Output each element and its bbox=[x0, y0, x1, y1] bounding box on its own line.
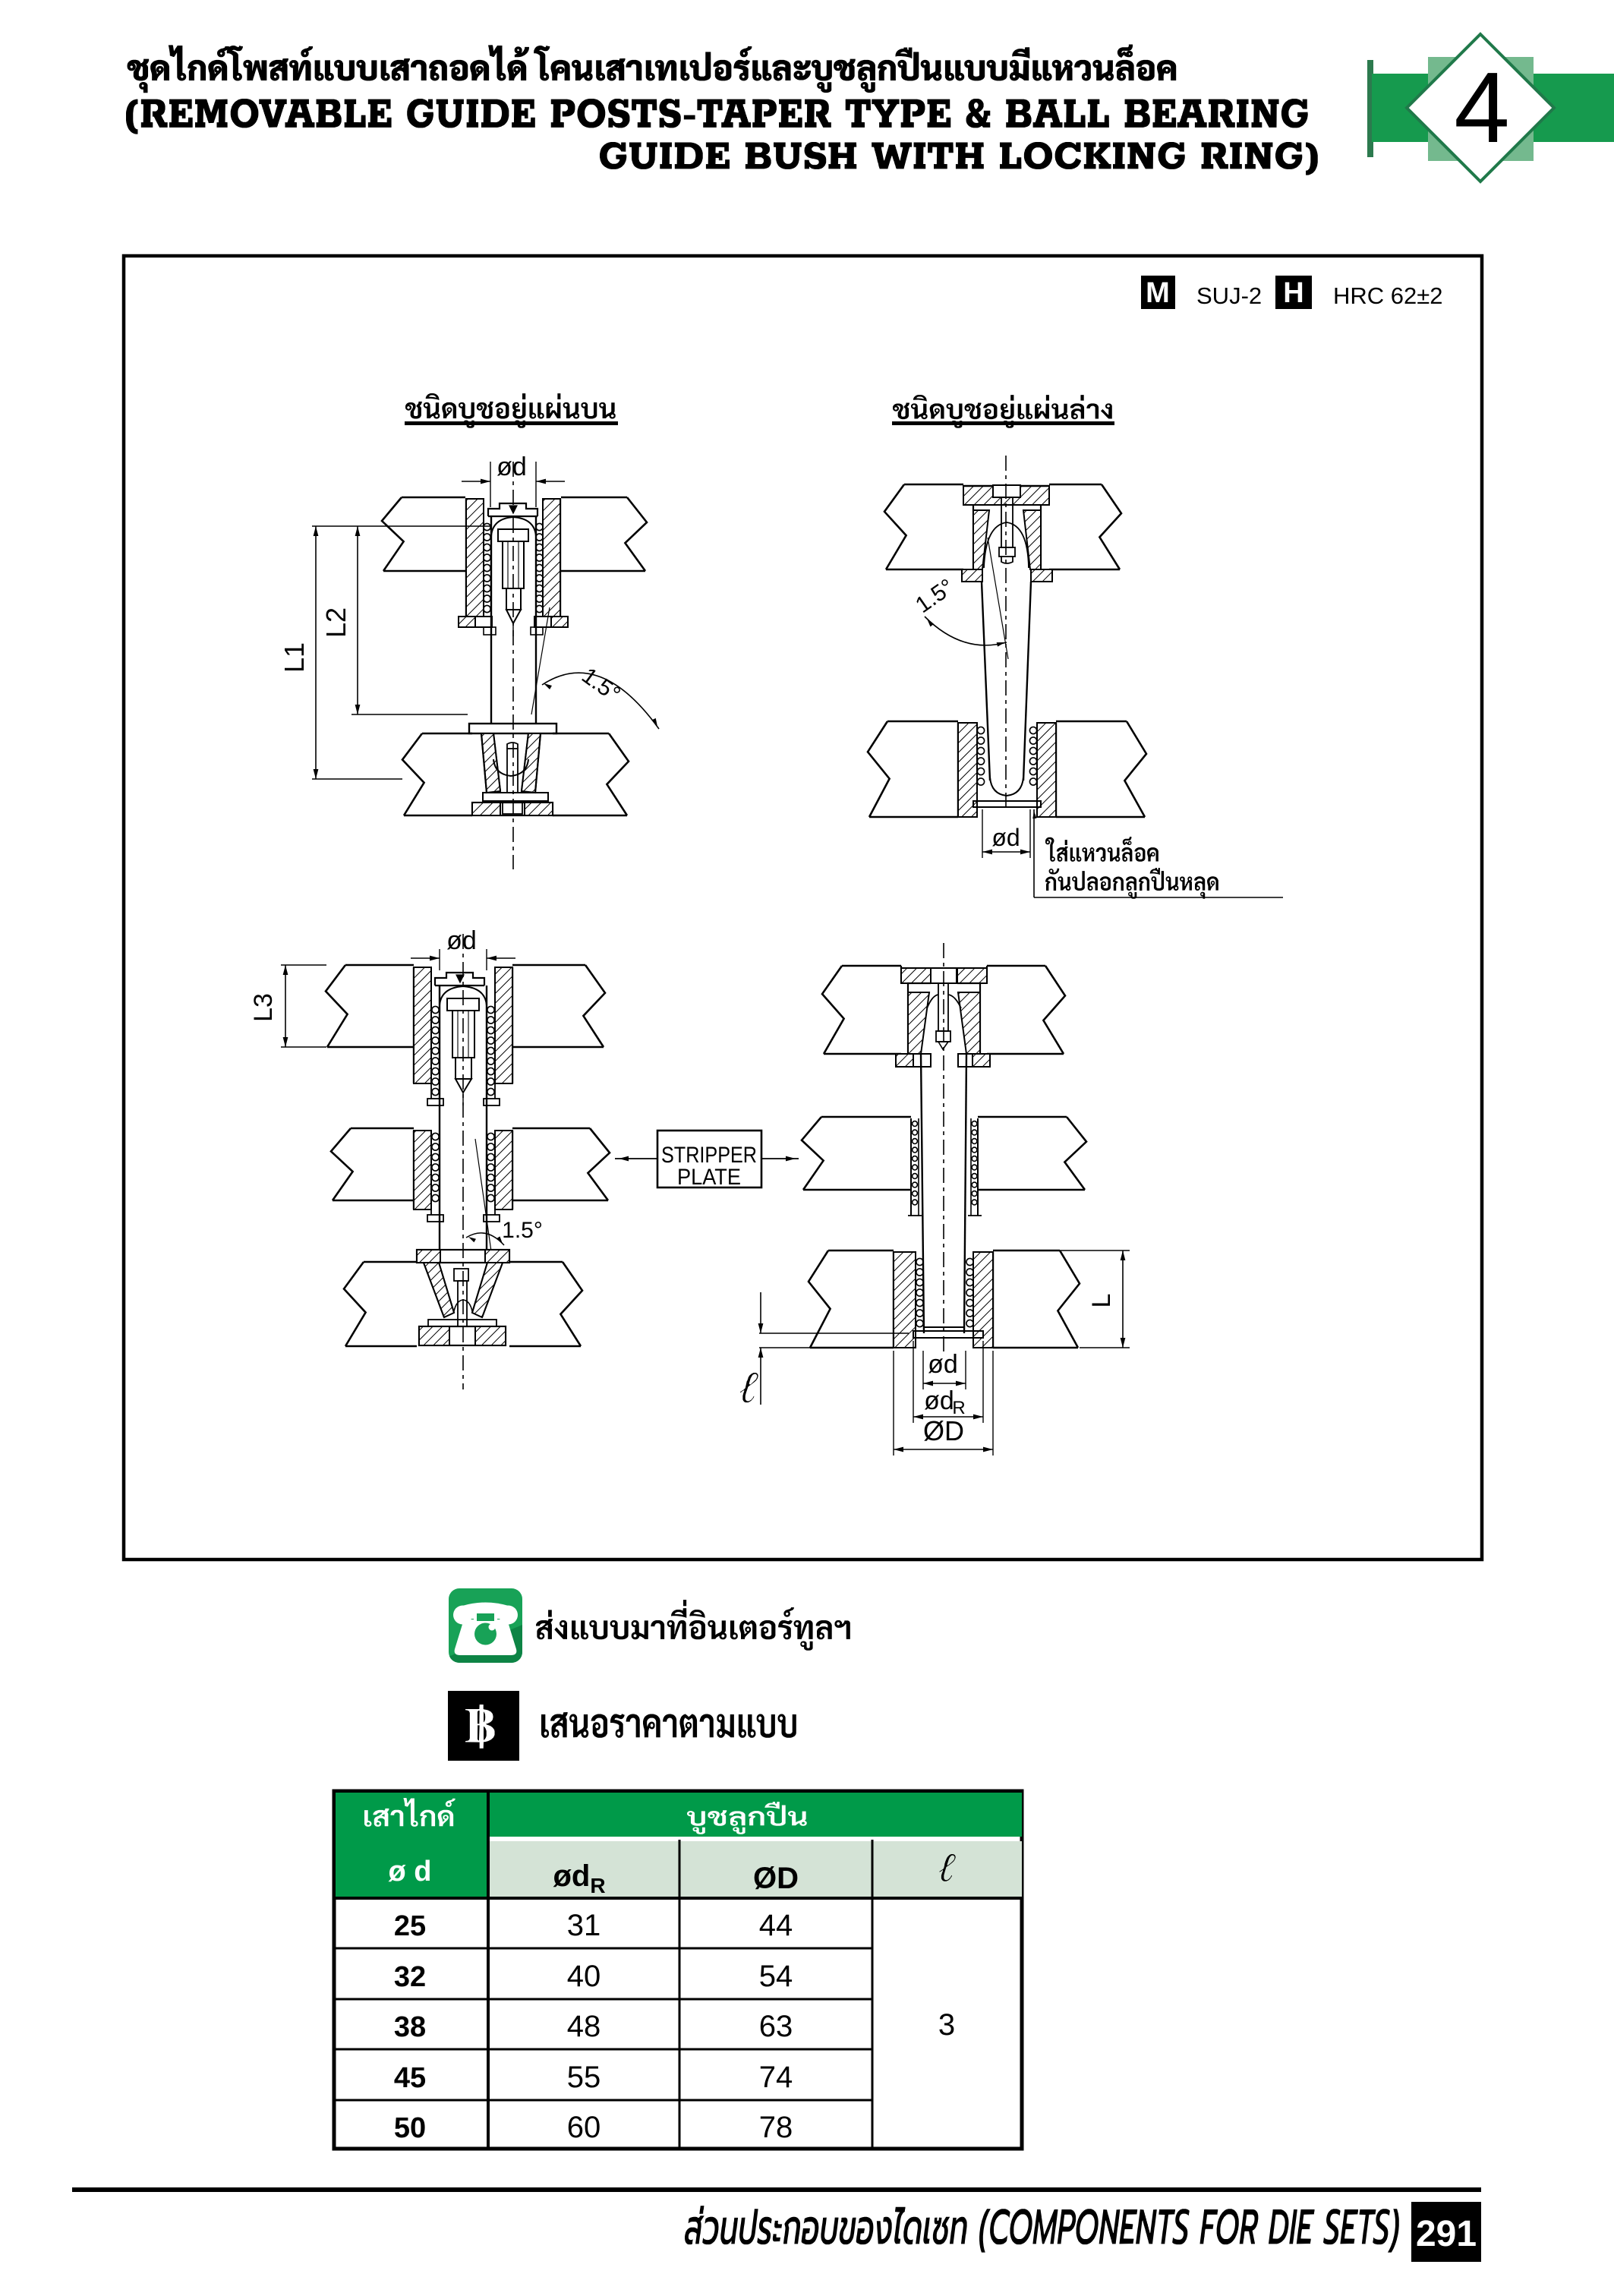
svg-text:31: 31 bbox=[567, 1909, 601, 1942]
svg-text:32: 32 bbox=[394, 1961, 426, 1993]
svg-text:25: 25 bbox=[394, 1910, 426, 1942]
svg-text:55: 55 bbox=[567, 2061, 601, 2094]
svg-text:3: 3 bbox=[938, 2008, 955, 2042]
svg-text:60: 60 bbox=[567, 2111, 601, 2144]
svg-text:54: 54 bbox=[759, 1960, 793, 1993]
svg-text:44: 44 bbox=[759, 1909, 793, 1942]
svg-text:50: 50 bbox=[394, 2112, 426, 2144]
svg-text:38: 38 bbox=[394, 2011, 426, 2043]
svg-text:74: 74 bbox=[759, 2061, 793, 2094]
svg-text:78: 78 bbox=[759, 2111, 793, 2144]
svg-text:40: 40 bbox=[567, 1960, 601, 1993]
svg-text:45: 45 bbox=[394, 2062, 426, 2094]
svg-text:48: 48 bbox=[567, 2010, 601, 2043]
svg-text:63: 63 bbox=[759, 2010, 793, 2043]
